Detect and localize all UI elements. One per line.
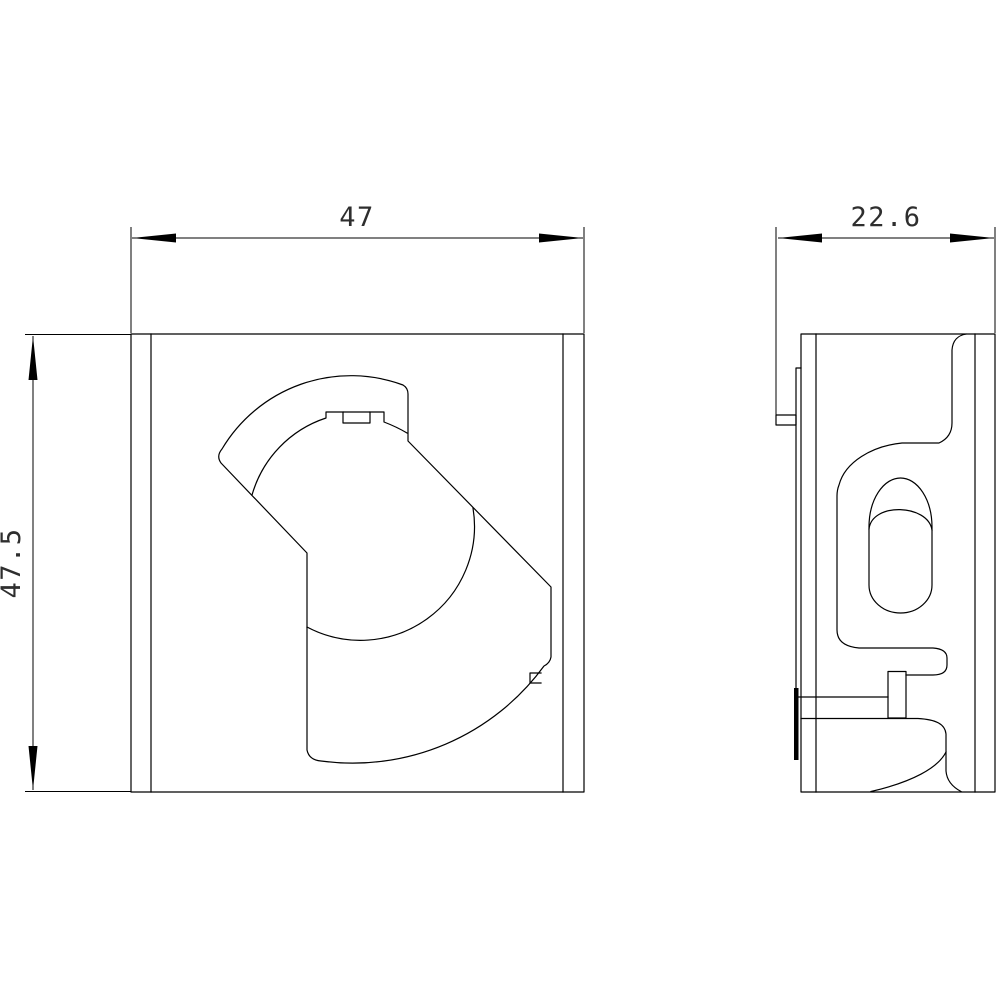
- foot-sweep-curve: [871, 752, 946, 792]
- mounting-tab: [776, 415, 796, 425]
- rail-spring-bar: [794, 688, 799, 760]
- side-view-outline: [801, 334, 995, 792]
- cam-disc-arc-upper-right: [370, 412, 407, 433]
- dim-arrow-right-icon: [950, 234, 994, 243]
- dim-arrow-down-icon: [29, 746, 38, 790]
- cam-lever-outline: [219, 376, 551, 763]
- dim-arrow-up-icon: [29, 336, 38, 380]
- oval-slot-chamfer-arc: [869, 510, 932, 530]
- drawing-page: 47 22.6 47.5: [0, 0, 1000, 1000]
- dimension-front-height: 47.5: [0, 335, 131, 792]
- side-view: [776, 334, 995, 792]
- front-view-outline: [131, 334, 584, 792]
- dimension-side-width: 22.6: [776, 202, 995, 415]
- dimension-front-width: 47: [131, 202, 584, 333]
- mounting-plate-edge: [796, 368, 801, 697]
- dim-value-side-width: 22.6: [850, 202, 921, 233]
- oval-slot: [869, 478, 932, 613]
- dim-value-front-height: 47.5: [0, 527, 27, 598]
- dim-value-front-width: 47: [339, 202, 375, 233]
- front-view: [131, 334, 584, 792]
- dim-arrow-left-icon: [778, 234, 822, 243]
- technical-drawing-canvas: 47 22.6 47.5: [0, 0, 1000, 1000]
- cam-disc-arc-upper-left: [252, 412, 343, 495]
- slide-bar-bottom-edge: [801, 719, 961, 792]
- catch-hook-profile: [837, 334, 966, 675]
- locking-pin: [888, 672, 906, 719]
- cam-disc-arc-lower: [307, 508, 474, 640]
- dim-arrow-left-icon: [132, 234, 176, 243]
- dim-arrow-right-icon: [539, 234, 583, 243]
- padlock-slot: [343, 412, 370, 423]
